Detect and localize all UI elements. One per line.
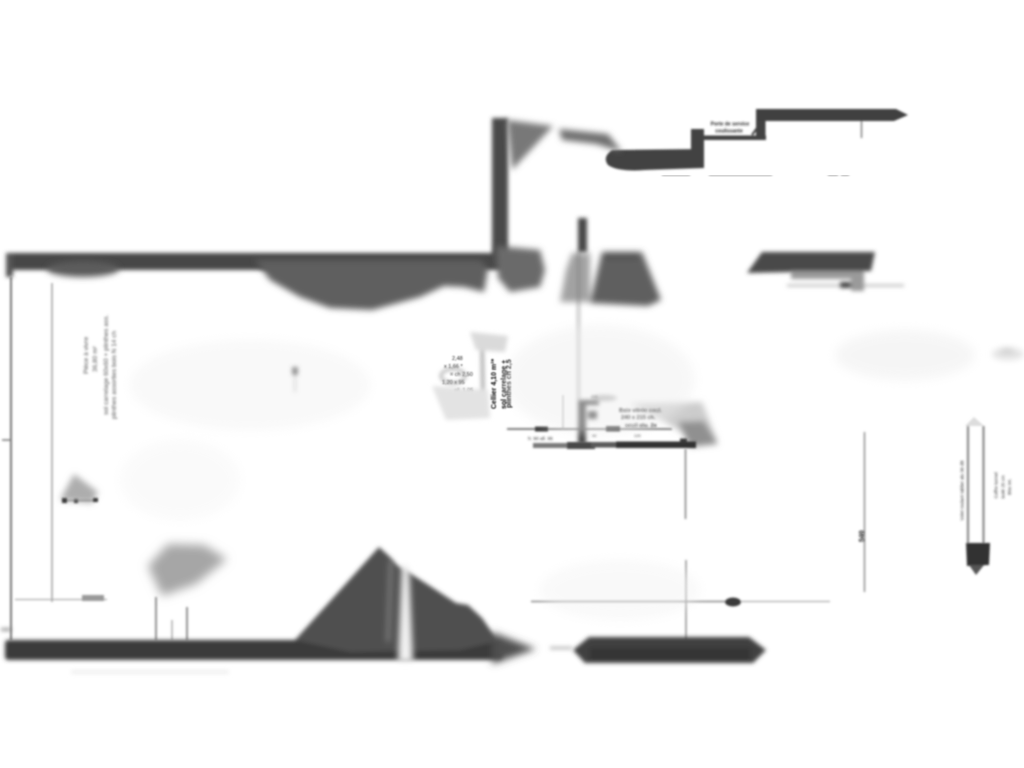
svg-text:h: 90 all. 95: h: 90 all. 95 bbox=[528, 436, 553, 442]
svg-text:120: 120 bbox=[634, 433, 641, 438]
svg-text:Porte de service: Porte de service bbox=[711, 122, 750, 128]
svg-text:plinthes assorties bois N 14 c: plinthes assorties bois N 14 ch bbox=[111, 330, 118, 419]
svg-text:sol carrelage 60x60 + plinthes: sol carrelage 60x60 + plinthes ass. bbox=[103, 315, 110, 415]
svg-text:= ch 2,50: = ch 2,50 bbox=[450, 372, 473, 378]
svg-text:2,48: 2,48 bbox=[452, 356, 463, 362]
svg-text:Pièce à vivre: Pièce à vivre bbox=[83, 336, 90, 374]
svg-text:Bloc int.: Bloc int. bbox=[1007, 479, 1012, 495]
svg-text:36,80 m²: 36,80 m² bbox=[92, 346, 99, 372]
svg-text:Volet roulant tablier alu 36 d: Volet roulant tablier alu 36 dB bbox=[960, 460, 965, 520]
svg-text:Coffre tunnel: Coffre tunnel bbox=[994, 472, 999, 498]
svg-text:Cellier 4,10 m²*: Cellier 4,10 m²* bbox=[491, 359, 498, 409]
svg-text:isolé 25 cm: isolé 25 cm bbox=[1001, 475, 1006, 498]
svg-text:540: 540 bbox=[859, 530, 866, 542]
svg-text:coulissante: coulissante bbox=[715, 129, 743, 135]
